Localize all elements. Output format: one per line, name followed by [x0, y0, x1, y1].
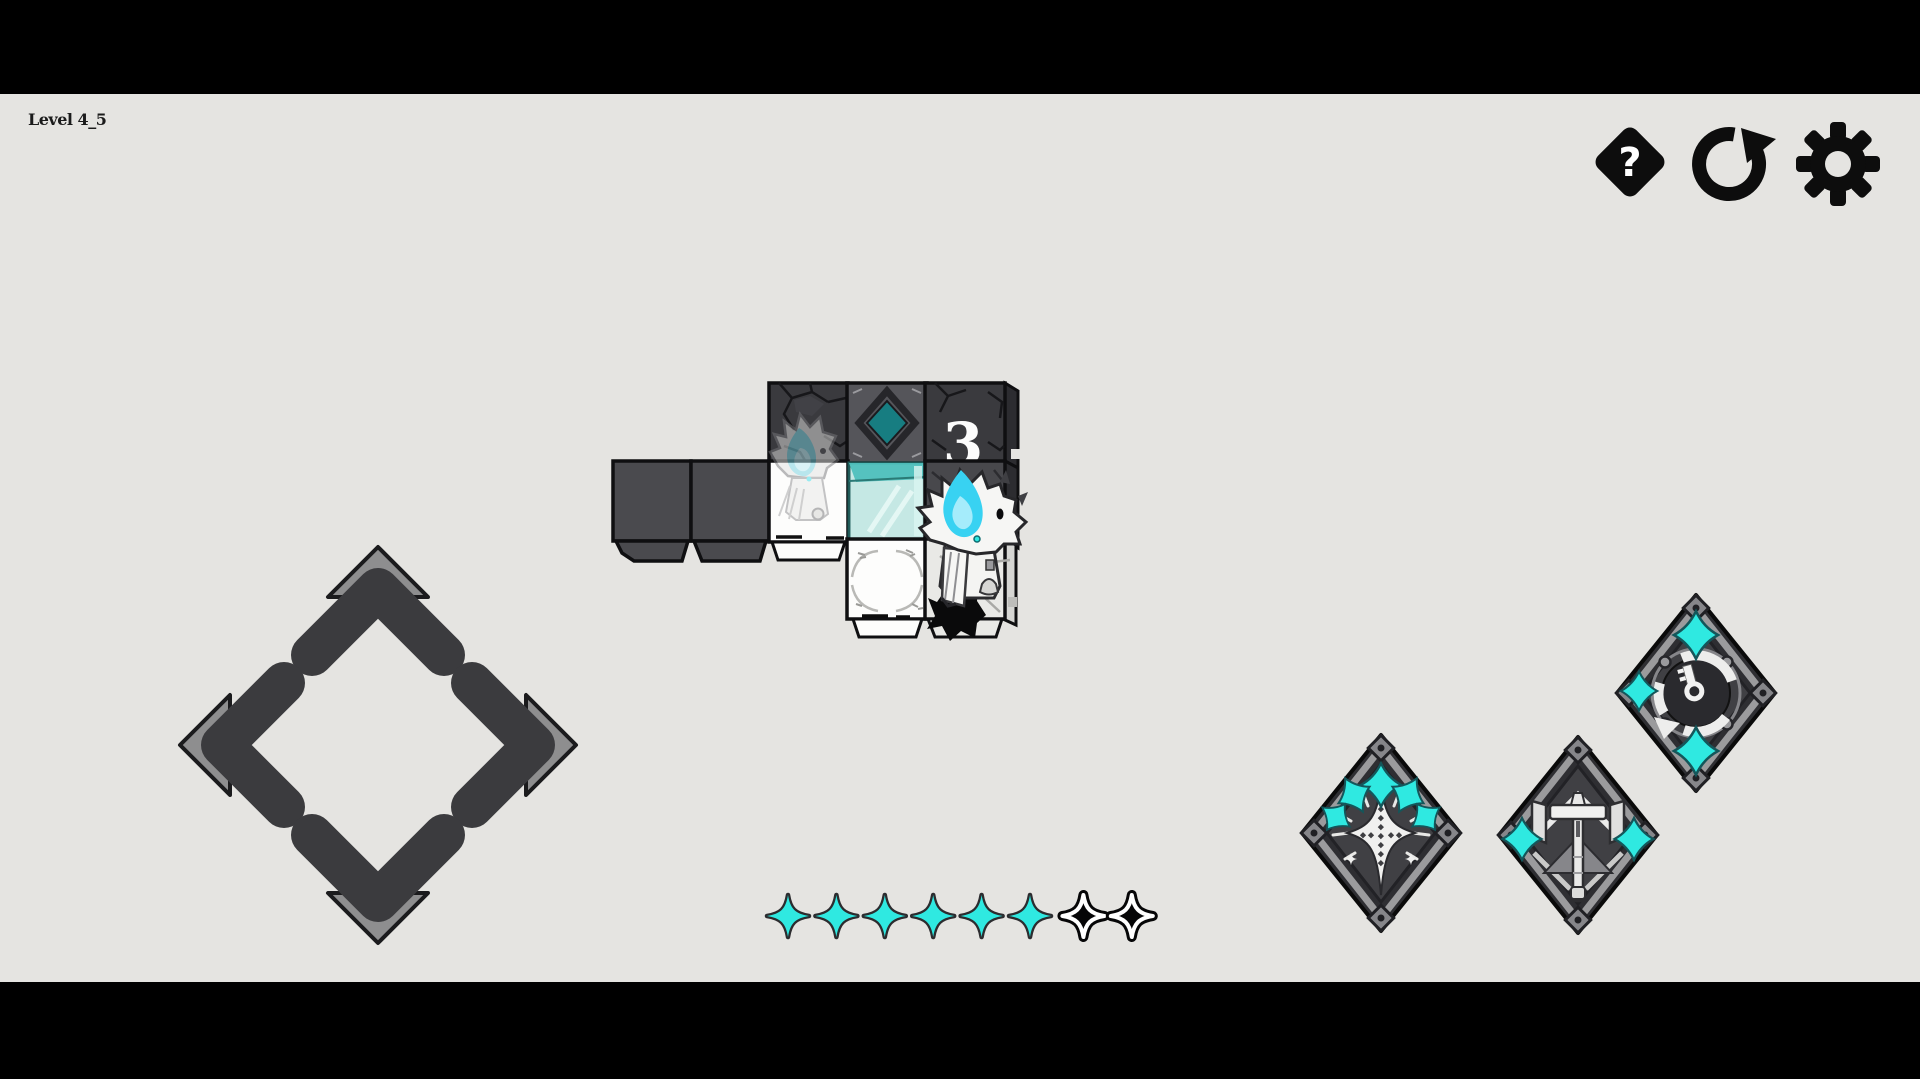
game-scene: ?	[0, 0, 1920, 1079]
game-stage: ?	[0, 0, 1920, 1079]
settings-button[interactable]	[1796, 122, 1880, 206]
tile-glass	[849, 463, 925, 540]
tile-dark-cube-left-2	[691, 461, 769, 561]
cube-notch	[1011, 449, 1020, 459]
player-eye	[997, 509, 1004, 520]
ghost-eye	[820, 448, 826, 454]
gear-icon	[1796, 122, 1880, 206]
tile-dark-cube-left-1	[613, 461, 691, 561]
help-glyph: ?	[1618, 140, 1641, 186]
level-label: Level 4_5	[28, 110, 106, 129]
player-neck-gem	[974, 536, 980, 542]
tile-white-ornate	[847, 539, 927, 637]
tile-gem-emblem-cube	[847, 383, 927, 463]
